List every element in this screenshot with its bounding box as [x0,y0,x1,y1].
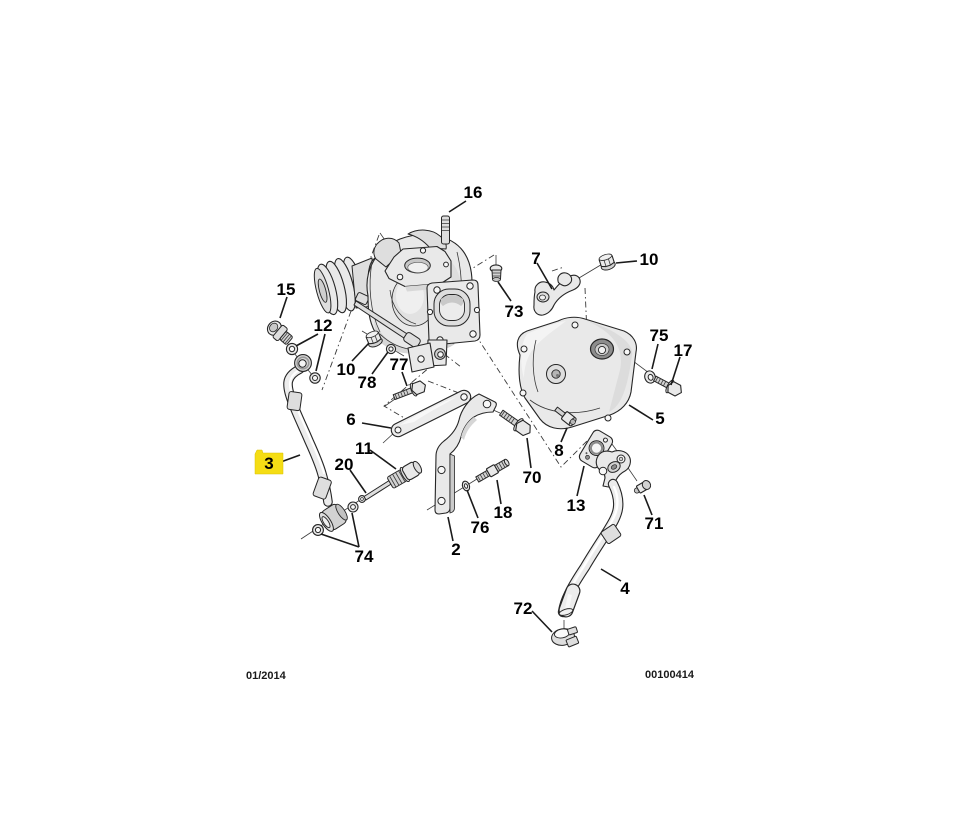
svg-text:20: 20 [335,455,354,474]
svg-text:4: 4 [620,579,630,598]
svg-text:76: 76 [471,518,490,537]
svg-text:8: 8 [554,441,563,460]
svg-text:2: 2 [451,540,460,559]
svg-text:78: 78 [358,373,377,392]
svg-text:77: 77 [390,355,409,374]
svg-text:16: 16 [464,183,483,202]
svg-text:73: 73 [505,302,524,321]
svg-text:75: 75 [650,326,669,345]
svg-text:13: 13 [567,496,586,515]
svg-text:10: 10 [640,250,659,269]
svg-text:11: 11 [355,439,373,458]
svg-text:00100414: 00100414 [645,669,695,681]
svg-text:10: 10 [337,360,356,379]
svg-text:3: 3 [264,454,273,473]
svg-text:5: 5 [655,409,664,428]
svg-text:18: 18 [494,503,513,522]
svg-text:7: 7 [531,249,540,268]
svg-text:17: 17 [674,341,693,360]
svg-text:6: 6 [346,410,355,429]
svg-text:70: 70 [523,468,542,487]
svg-text:15: 15 [277,280,296,299]
svg-text:74: 74 [355,547,374,566]
svg-text:01/2014: 01/2014 [246,670,287,682]
svg-text:12: 12 [314,316,333,335]
svg-text:72: 72 [514,599,533,618]
svg-text:71: 71 [645,514,664,533]
